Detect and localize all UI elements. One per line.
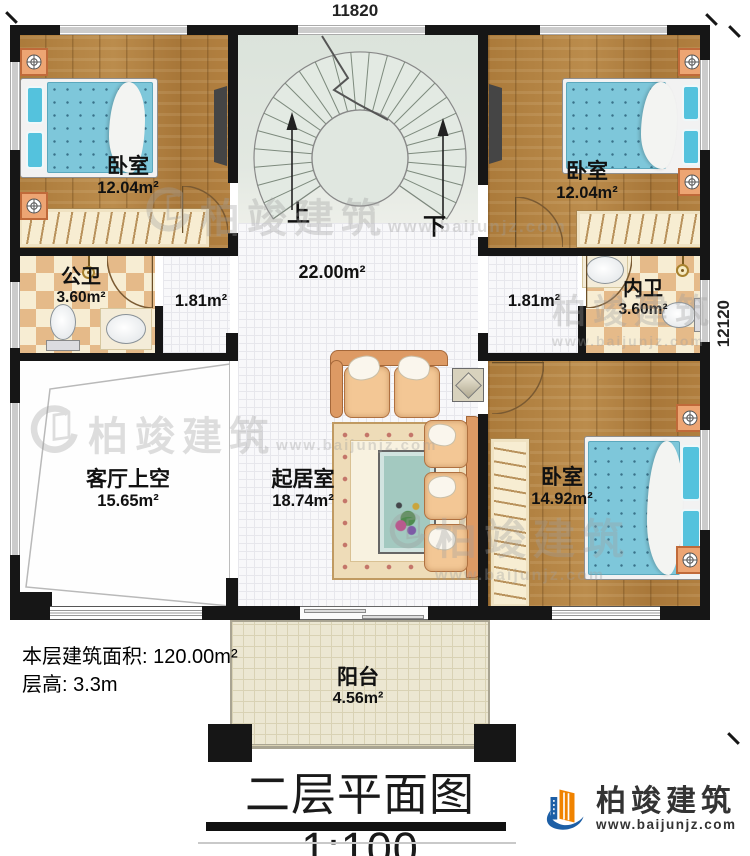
window bbox=[10, 403, 20, 555]
room-label-bedroom-tr: 卧室12.04m² bbox=[517, 160, 657, 203]
wardrobe bbox=[490, 438, 530, 608]
wall-segment bbox=[428, 606, 552, 620]
floor-area-info: 本层建筑面积: 120.00m² bbox=[22, 640, 238, 669]
title-underline bbox=[206, 822, 506, 831]
floor-plan-canvas: 11820 12120 bbox=[0, 0, 750, 856]
wall-segment bbox=[700, 25, 710, 60]
room-label-corridor-left: 1.81m² bbox=[166, 292, 236, 311]
room-label-private-bath: 内卫3.60m² bbox=[593, 278, 693, 319]
stairs-up-label: 上 bbox=[287, 194, 310, 228]
room-label-corridor-right: 1.81m² bbox=[499, 292, 569, 311]
window bbox=[540, 25, 667, 35]
dimension-top: 11820 bbox=[280, 1, 430, 21]
door-arc bbox=[515, 197, 563, 247]
floor-height-info: 层高: 3.3m bbox=[22, 668, 118, 697]
window bbox=[700, 430, 710, 530]
wall-segment bbox=[226, 333, 238, 361]
brand-name: 柏竣建筑 bbox=[596, 786, 737, 818]
pillow bbox=[681, 445, 701, 501]
pillow bbox=[682, 85, 700, 121]
window bbox=[10, 282, 20, 348]
plan-title-text: 二层平面图 bbox=[245, 769, 475, 820]
pillow bbox=[682, 129, 700, 165]
window bbox=[60, 25, 187, 35]
wall-segment bbox=[578, 306, 586, 353]
pillow bbox=[26, 86, 44, 124]
balcony-railing bbox=[230, 744, 490, 749]
stairs-down-label: 下 bbox=[423, 207, 446, 241]
ceiling-lamp bbox=[676, 264, 689, 277]
wall-segment bbox=[202, 606, 300, 620]
spiral-staircase bbox=[238, 28, 478, 223]
brand-logo: 柏竣建筑 www.baijunjz.com bbox=[540, 782, 737, 836]
wall-segment bbox=[478, 414, 488, 608]
balcony-sliding-door bbox=[300, 606, 428, 620]
window bbox=[700, 60, 710, 150]
tv-panel bbox=[214, 86, 227, 166]
room-label-bedroom-tl: 卧室12.04m² bbox=[58, 155, 198, 198]
wall-segment bbox=[226, 578, 238, 608]
wall-segment bbox=[10, 150, 20, 282]
room-label-living: 起居室18.74m² bbox=[233, 468, 373, 511]
dimension-tick bbox=[727, 732, 740, 745]
sink bbox=[106, 314, 146, 344]
window bbox=[552, 606, 660, 620]
wall-segment bbox=[478, 248, 706, 256]
tv-panel bbox=[489, 84, 502, 164]
wall-segment bbox=[10, 248, 238, 256]
nightstand bbox=[20, 192, 48, 220]
dimension-tick bbox=[705, 13, 718, 26]
room-label-hall-area: 22.00m² bbox=[292, 262, 372, 283]
title-underline-thin bbox=[198, 842, 516, 844]
room-label-public-bath: 公卫3.60m² bbox=[31, 266, 131, 307]
wall-segment bbox=[10, 606, 50, 620]
wall-segment bbox=[660, 606, 710, 620]
nightstand bbox=[20, 48, 48, 76]
dimension-tick bbox=[5, 11, 18, 24]
toilet-tank bbox=[46, 340, 80, 351]
balcony-column bbox=[208, 724, 252, 762]
wall-segment bbox=[187, 25, 298, 35]
wall-segment bbox=[478, 333, 488, 360]
wall-segment bbox=[478, 25, 488, 185]
door-arc bbox=[492, 362, 544, 414]
corner-table bbox=[452, 368, 484, 402]
room-label-living-void: 客厅上空15.65m² bbox=[58, 468, 198, 511]
sofa bbox=[424, 416, 482, 578]
toilet bbox=[50, 304, 76, 340]
window bbox=[50, 606, 202, 620]
wall-segment bbox=[10, 353, 238, 361]
window bbox=[10, 62, 20, 150]
room-label-balcony: 阳台4.56m² bbox=[310, 666, 406, 709]
pillow bbox=[26, 131, 44, 169]
wardrobe bbox=[576, 210, 706, 248]
sofa bbox=[330, 350, 448, 422]
brand-url: www.baijunjz.com bbox=[596, 817, 737, 832]
wall-segment bbox=[10, 25, 20, 62]
window bbox=[700, 280, 710, 342]
balcony-column bbox=[474, 724, 516, 762]
wall-segment bbox=[228, 25, 238, 183]
dimension-right: 12120 bbox=[714, 300, 734, 347]
window bbox=[298, 25, 425, 35]
wall-segment bbox=[700, 150, 710, 280]
brand-logo-icon bbox=[540, 782, 588, 836]
wall-segment bbox=[478, 353, 706, 361]
room-label-bedroom-br: 卧室14.92m² bbox=[492, 466, 632, 509]
dimension-tick bbox=[728, 25, 741, 38]
wall-segment bbox=[155, 306, 163, 353]
